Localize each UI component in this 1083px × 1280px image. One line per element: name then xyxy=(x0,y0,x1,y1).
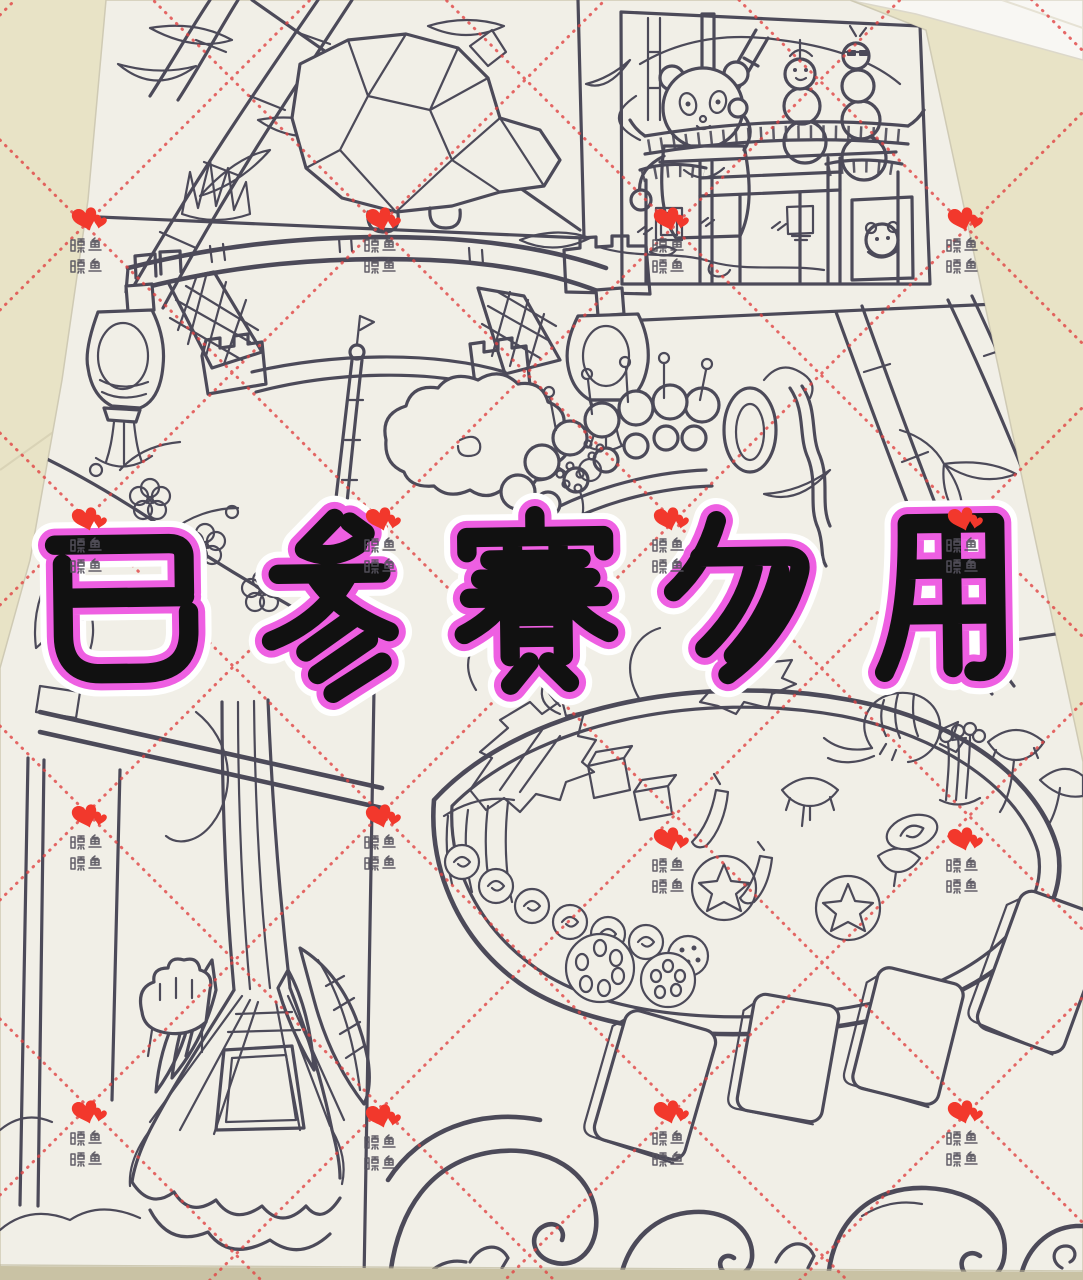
photographed-sketch: 已参赛勿用 鲸鱼 鲸鱼 xyxy=(0,0,1083,1280)
photo-canvas xyxy=(0,0,1083,1280)
